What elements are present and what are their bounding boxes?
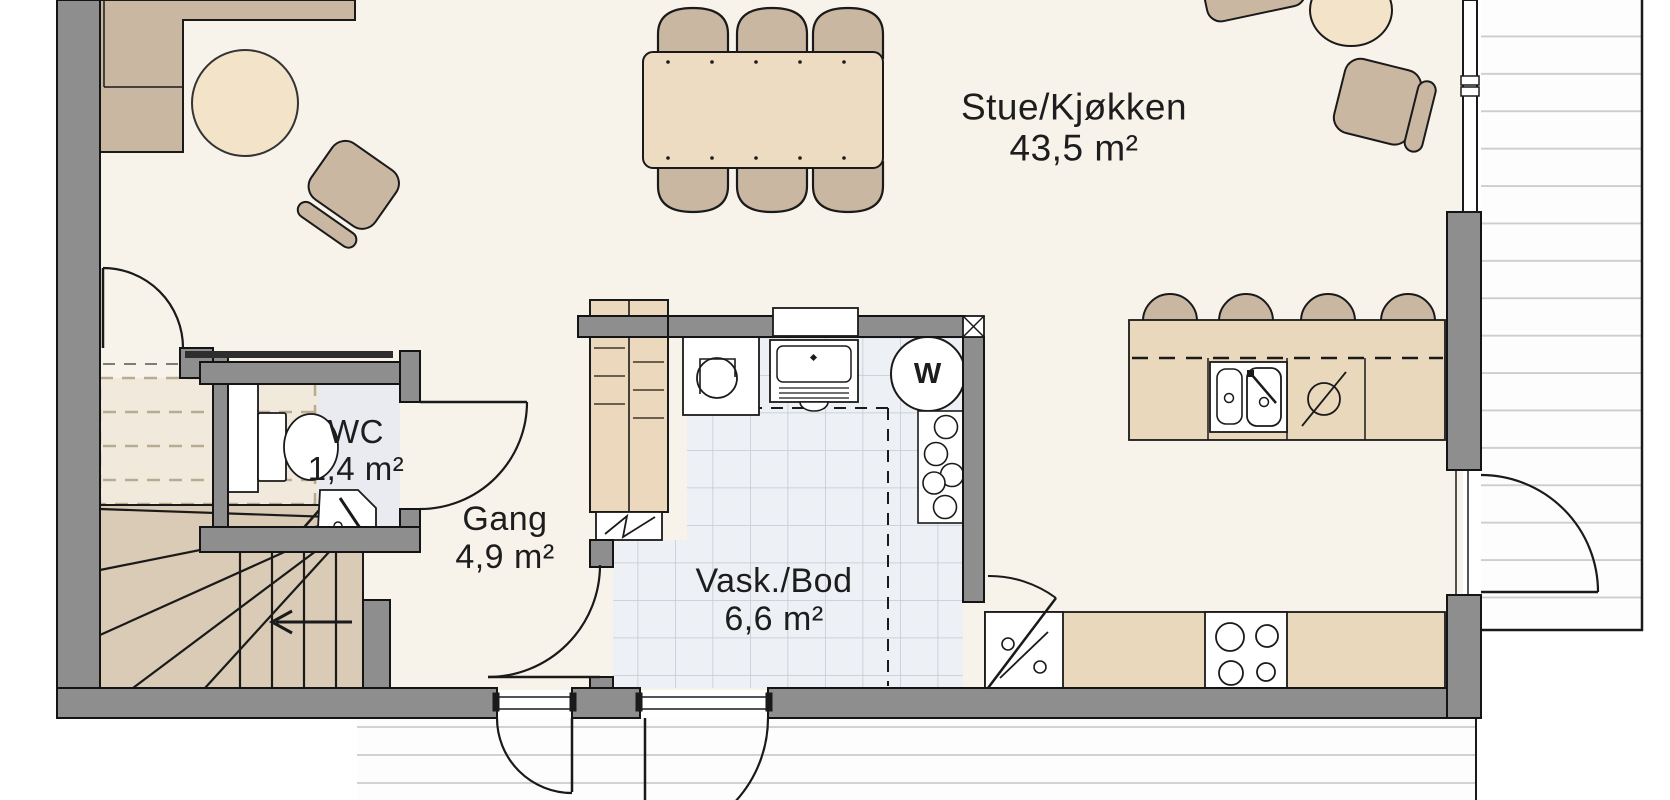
washing-machine-label: W [914,358,942,390]
dining-chair [737,162,807,212]
room-area: 6,6 m² [696,600,853,638]
room-name: Stue/Kjøkken [961,87,1187,128]
window-wall [1461,0,1479,212]
floor-drain-unit-icon [683,337,759,415]
wall-break-symbol [596,512,662,540]
room-name: Vask./Bod [696,562,853,600]
deck-right [1481,0,1643,631]
dining-chair [737,8,807,58]
kitchen-counter-bottom [985,612,1445,688]
wall-wc-bottom [200,527,420,552]
floor-plan-drawing [0,0,1670,800]
room-area: 43,5 m² [961,128,1187,169]
corner-marker-icon [963,316,984,337]
wall-wc-right [400,351,420,402]
dining-chair [813,162,883,212]
wall-wc-top [200,362,420,384]
dining-set [643,8,883,212]
wall-bottom [572,688,640,718]
cooktop-icon [1205,612,1287,688]
laundry-window [773,308,858,336]
room-label-wc: WC 1,4 m² [308,414,405,488]
room-label-vask-bod: Vask./Bod 6,6 m² [696,562,853,638]
dining-chair [658,8,728,58]
room-label-gang: Gang 4,9 m² [455,500,554,576]
floor-plan-canvas: Stue/Kjøkken 43,5 m² WC 1,4 m² Gang 4,9 … [0,0,1670,800]
deck-bottom [357,718,1476,800]
dining-chair [813,8,883,58]
wall-gang [363,600,390,688]
utility-sink-icon [770,340,858,411]
wc-lintel [185,351,393,358]
wall-bottom [768,688,1481,718]
wall-bottom [57,688,497,718]
wc-vanity [228,384,258,492]
pipe-manifold-icon [918,411,965,523]
kitchen-sink-icon [1210,362,1287,432]
room-name: WC [308,414,405,451]
dining-chair [658,162,728,212]
room-label-stue-kjokken: Stue/Kjøkken 43,5 m² [961,87,1187,170]
wall-right [1447,212,1481,470]
room-area: 1,4 m² [308,451,405,488]
coffee-table [192,50,298,156]
dining-table [643,52,883,168]
room-area: 4,9 m² [455,538,554,576]
wall-right [1447,595,1481,718]
wall-laundry-left [590,677,613,688]
wall-laundry-left [590,540,613,567]
wall-left [57,0,100,718]
wall-laundry-right [963,337,984,602]
room-name: Gang [455,500,554,538]
